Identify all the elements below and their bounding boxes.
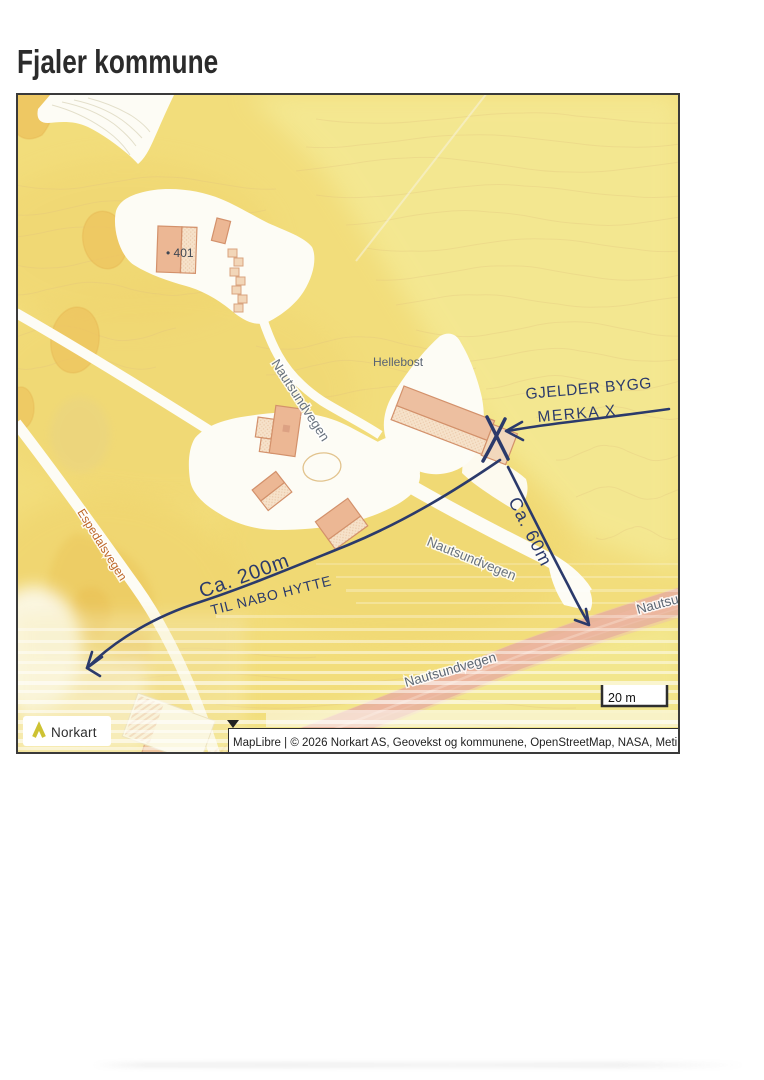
svg-text:Hellebost: Hellebost <box>373 355 424 369</box>
svg-text:20 m: 20 m <box>608 691 636 705</box>
svg-text:• 401: • 401 <box>166 246 194 260</box>
svg-text:MapLibre | © 2026 Norkart AS,: MapLibre | © 2026 Norkart AS, Geovekst o… <box>233 737 677 749</box>
svg-text:Norkart: Norkart <box>51 725 97 740</box>
